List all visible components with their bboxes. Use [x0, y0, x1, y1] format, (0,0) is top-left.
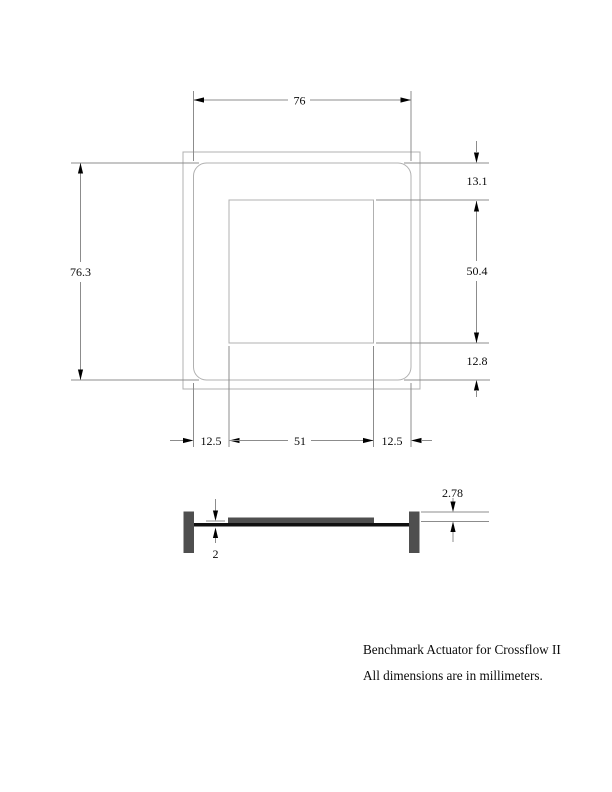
units-note: All dimensions are in millimeters. [363, 668, 543, 683]
dim-label: 76.3 [70, 265, 91, 279]
dim-label: 50.4 [467, 264, 488, 278]
dim-label: 12.8 [467, 354, 488, 368]
dim-label: 2 [213, 547, 219, 561]
left-side-wall [184, 512, 195, 554]
membrane-plate [194, 523, 409, 527]
dim-label: 13.1 [467, 174, 488, 188]
drawing-title: Benchmark Actuator for Crossflow II [363, 642, 561, 657]
dim-label: 76 [294, 94, 306, 108]
actuator-patch [228, 518, 374, 524]
drawing-page: 76 76.3 13.1 50.4 12.8 [0, 0, 612, 792]
right-side-wall [409, 512, 420, 554]
dim-label: 12.5 [201, 434, 222, 448]
dim-label: 12.5 [382, 434, 403, 448]
dim-label: 2.78 [442, 486, 463, 500]
dim-label: 51 [294, 434, 306, 448]
technical-drawing: 76 76.3 13.1 50.4 12.8 [0, 0, 612, 792]
